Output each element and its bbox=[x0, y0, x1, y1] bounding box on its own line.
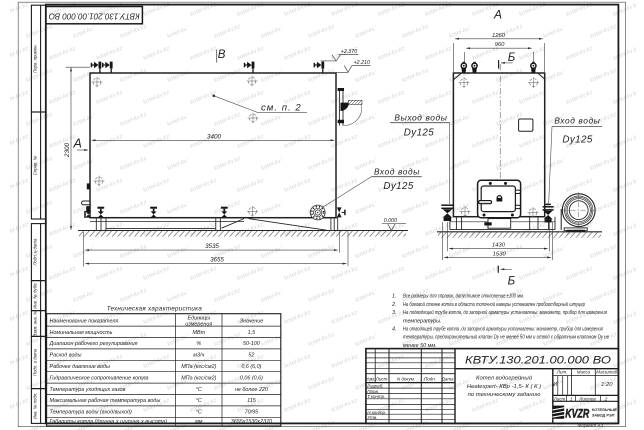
svg-text:МПа (кгс/см2): МПа (кгс/см2) bbox=[181, 375, 216, 381]
svg-text:1530: 1530 bbox=[493, 251, 507, 257]
svg-text:КВТУ.130.201.00.000 ВО: КВТУ.130.201.00.000 ВО bbox=[49, 11, 140, 20]
svg-text:50-100: 50-100 bbox=[243, 341, 260, 347]
svg-text:+2.210: +2.210 bbox=[354, 60, 370, 66]
svg-text:Наименование показателя: Наименование показателя bbox=[50, 319, 119, 325]
svg-text:На отводящей трубе котла ,до з: На отводящей трубе котла ,до запорной ар… bbox=[403, 326, 603, 333]
svg-text:см. п. 2: см. п. 2 bbox=[261, 103, 302, 114]
svg-text:И: И bbox=[553, 382, 557, 388]
svg-text:Heatexpert- КВр -1,5- К ( К ): Heatexpert- КВр -1,5- К ( К ) bbox=[467, 384, 541, 390]
svg-text:Разраб.: Разраб. bbox=[367, 383, 383, 388]
svg-text:1,5: 1,5 bbox=[248, 330, 256, 336]
svg-text:70/95: 70/95 bbox=[245, 410, 259, 416]
svg-text:Перв. примен.: Перв. примен. bbox=[33, 44, 38, 73]
svg-text:Диапазон рабочего регулировани: Диапазон рабочего регулирования bbox=[49, 341, 138, 347]
svg-text:Взам. инв. №: Взам. инв. № bbox=[33, 310, 38, 337]
svg-text:Б: Б bbox=[508, 275, 516, 287]
svg-text:не более 220: не более 220 bbox=[235, 387, 268, 393]
svg-text:Подп. и дата: Подп. и дата bbox=[33, 348, 38, 376]
svg-text:3.: 3. bbox=[392, 310, 397, 316]
svg-text:0,6 (6,0): 0,6 (6,0) bbox=[241, 364, 261, 370]
svg-text:мм: мм bbox=[195, 419, 203, 425]
svg-text:Максимальная рабочая температу: Максимальная рабочая температура воды bbox=[50, 398, 161, 404]
svg-text:Техническая характеристика: Техническая характеристика bbox=[107, 305, 203, 312]
svg-text:Лист: Лист bbox=[375, 376, 388, 381]
svg-text:Температура уходящих газов: Температура уходящих газов bbox=[50, 387, 126, 393]
svg-text:Вход воды: Вход воды bbox=[374, 167, 420, 177]
svg-text:1:20: 1:20 bbox=[601, 382, 613, 388]
svg-text:м3/ч: м3/ч bbox=[193, 353, 204, 359]
svg-text:Лит.: Лит. bbox=[556, 370, 568, 375]
svg-text:3655х1530х2370: 3655х1530х2370 bbox=[231, 419, 272, 425]
svg-text:А: А bbox=[73, 137, 82, 151]
svg-text:°С: °С bbox=[196, 410, 202, 416]
svg-text:Подп.: Подп. bbox=[424, 376, 436, 381]
svg-text:3535: 3535 bbox=[205, 243, 219, 250]
svg-text:Расход воды: Расход воды bbox=[50, 353, 82, 359]
svg-text:4.: 4. bbox=[392, 327, 397, 333]
svg-text:МВт: МВт bbox=[193, 330, 206, 336]
svg-text:температуры, предохранительный: температуры, предохранительный клапан Dу… bbox=[403, 334, 609, 341]
svg-text:Масштаб: Масштаб bbox=[596, 370, 617, 375]
svg-text:°С: °С bbox=[196, 398, 202, 404]
svg-text:Температура воды (вход/выход): Температура воды (вход/выход) bbox=[50, 410, 133, 416]
svg-text:0,06 (0,6): 0,06 (0,6) bbox=[240, 375, 263, 381]
svg-text:температуры.: температуры. bbox=[403, 318, 442, 324]
svg-text:Инв. № дубл.: Инв. № дубл. bbox=[33, 282, 38, 308]
svg-text:2: 2 bbox=[604, 396, 608, 401]
svg-text:Формат А3: Формат А3 bbox=[578, 423, 604, 428]
svg-text:N докум.: N докум. bbox=[397, 376, 415, 381]
svg-text:Листов: Листов bbox=[578, 396, 596, 401]
svg-text:МПа (кгс/см2): МПа (кгс/см2) bbox=[181, 364, 216, 370]
svg-text:Котел водогрейный: Котел водогрейный bbox=[476, 375, 533, 382]
svg-text:Значение: Значение bbox=[240, 319, 264, 325]
svg-text:Пров.: Пров. bbox=[367, 389, 379, 394]
svg-text:На подводящей трубе котла, до: На подводящей трубе котла, до запорной а… bbox=[403, 309, 607, 316]
svg-text:KVZR: KVZR bbox=[565, 406, 589, 420]
svg-text:Выход воды: Выход воды bbox=[394, 113, 447, 123]
svg-text:Габариты котла (длинна х ширин: Габариты котла (длинна х ширина х высота… bbox=[50, 419, 168, 425]
svg-text:В: В bbox=[218, 49, 226, 61]
svg-text:Рабочее давление воды: Рабочее давление воды bbox=[50, 364, 110, 370]
svg-text:115: 115 bbox=[247, 398, 257, 404]
svg-text:52: 52 bbox=[248, 353, 254, 359]
svg-text:Б: Б bbox=[508, 52, 516, 64]
svg-text:%: % bbox=[196, 341, 201, 347]
svg-text:0.000: 0.000 bbox=[384, 218, 397, 224]
svg-text:КОТЕЛЬНЫЙ: КОТЕЛЬНЫЙ bbox=[592, 408, 617, 412]
svg-text:На боковой стенке котла в обла: На боковой стенке котла в области топочн… bbox=[403, 301, 585, 308]
svg-text:Т.контр.: Т.контр. bbox=[367, 394, 385, 399]
svg-text:измерения: измерения bbox=[185, 322, 212, 328]
svg-text:Инв. № подл.: Инв. № подл. bbox=[33, 393, 38, 420]
svg-text:1260: 1260 bbox=[492, 33, 506, 39]
svg-text:ЗАВОД РЭП: ЗАВОД РЭП bbox=[592, 413, 615, 417]
svg-text:960: 960 bbox=[495, 42, 506, 48]
svg-text:1430: 1430 bbox=[492, 243, 506, 249]
svg-text:А: А bbox=[493, 7, 502, 21]
svg-text:КВТУ.130.201.00.000 ВО: КВТУ.130.201.00.000 ВО bbox=[465, 354, 611, 366]
svg-text:Утв.: Утв. bbox=[367, 415, 377, 420]
svg-text:Dy125: Dy125 bbox=[383, 181, 413, 192]
svg-text:2.: 2. bbox=[391, 302, 397, 308]
svg-text:2300: 2300 bbox=[64, 142, 71, 158]
svg-text:Справ. №: Справ. № bbox=[33, 155, 38, 175]
svg-text:°С: °С bbox=[196, 387, 202, 393]
svg-text:Номинальная мощность: Номинальная мощность bbox=[50, 330, 113, 336]
svg-text:Н.контр.: Н.контр. bbox=[367, 410, 386, 415]
svg-text:Гидравлическое сопротивление к: Гидравлическое сопротивление котла bbox=[50, 375, 149, 381]
svg-text:Dy125: Dy125 bbox=[562, 134, 592, 145]
svg-text:3400: 3400 bbox=[207, 133, 222, 140]
svg-text:Масса: Масса bbox=[577, 370, 591, 375]
svg-text:Подп. и дата: Подп. и дата bbox=[33, 238, 38, 266]
svg-text:1.: 1. bbox=[392, 294, 397, 300]
svg-text:3655: 3655 bbox=[210, 257, 224, 264]
svg-text:Дата: Дата bbox=[441, 376, 454, 381]
svg-text:Лист: Лист bbox=[553, 396, 566, 401]
svg-text:Изм.: Изм. bbox=[365, 376, 375, 381]
svg-text:Все размеры для справок, допус: Все размеры для справок, допустимое откл… bbox=[403, 294, 524, 300]
svg-text:по техническому заданию: по техническому заданию bbox=[468, 392, 541, 398]
svg-text:Dy125: Dy125 bbox=[404, 128, 434, 139]
svg-text:Вход воды: Вход воды bbox=[554, 116, 600, 126]
